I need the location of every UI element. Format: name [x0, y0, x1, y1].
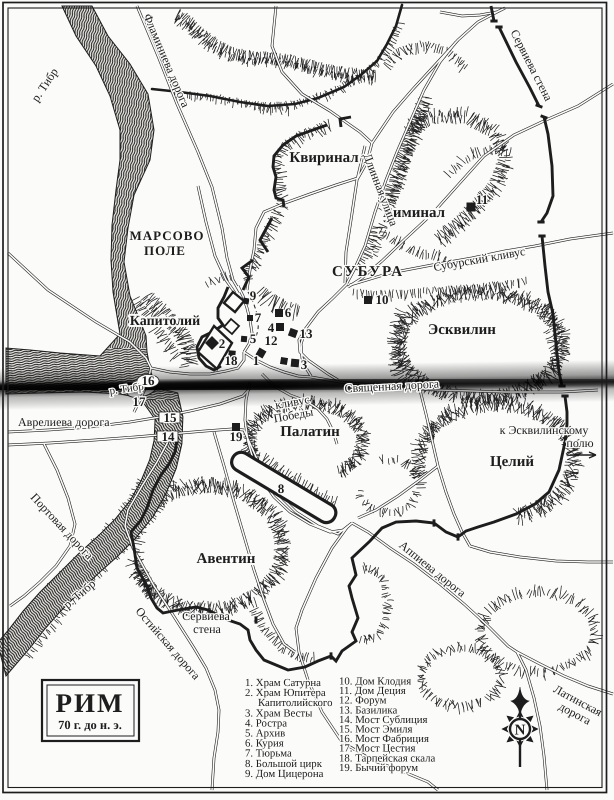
- svg-text:ПОЛЕ: ПОЛЕ: [144, 243, 186, 258]
- svg-text:Эсквилин: Эсквилин: [428, 322, 496, 338]
- svg-text:7: 7: [255, 310, 262, 325]
- svg-text:15: 15: [164, 410, 178, 425]
- svg-text:70 г. до н. э.: 70 г. до н. э.: [58, 718, 122, 732]
- svg-text:2: 2: [219, 336, 226, 351]
- svg-text:13: 13: [300, 326, 314, 341]
- svg-text:12: 12: [265, 333, 278, 348]
- svg-text:1: 1: [253, 353, 260, 368]
- svg-text:19. Бычий форум: 19. Бычий форум: [339, 762, 418, 774]
- svg-text:17: 17: [133, 394, 147, 409]
- svg-text:МАРСОВО: МАРСОВО: [129, 228, 204, 243]
- svg-text:СУБУРА: СУБУРА: [332, 264, 404, 280]
- svg-text:Сервиева: Сервиева: [182, 609, 230, 623]
- svg-text:стена: стена: [193, 622, 221, 636]
- svg-text:10: 10: [376, 292, 389, 307]
- svg-text:16: 16: [142, 373, 156, 388]
- svg-text:3: 3: [301, 357, 308, 372]
- svg-text:8: 8: [278, 481, 285, 496]
- svg-text:18: 18: [225, 353, 239, 368]
- svg-text:РИМ: РИМ: [56, 688, 125, 718]
- svg-text:Авентин: Авентин: [197, 551, 256, 567]
- svg-text:Аврелиева дорога: Аврелиева дорога: [18, 415, 110, 429]
- svg-text:N: N: [515, 723, 526, 739]
- svg-text:9. Дом Цицерона: 9. Дом Цицерона: [245, 768, 324, 780]
- svg-text:5: 5: [250, 331, 257, 346]
- svg-text:19: 19: [230, 429, 244, 444]
- svg-text:11: 11: [476, 192, 488, 207]
- svg-text:Палатин: Палатин: [280, 424, 340, 440]
- svg-text:Целий: Целий: [490, 454, 534, 470]
- svg-text:к Эсквилинскому: к Эсквилинскому: [500, 423, 589, 437]
- svg-text:14: 14: [162, 429, 176, 444]
- svg-text:9: 9: [250, 288, 257, 303]
- svg-text:полю: полю: [566, 436, 593, 450]
- svg-text:6: 6: [285, 305, 292, 320]
- svg-text:Квиринал: Квиринал: [289, 150, 359, 166]
- svg-text:Капитолий: Капитолий: [130, 314, 200, 329]
